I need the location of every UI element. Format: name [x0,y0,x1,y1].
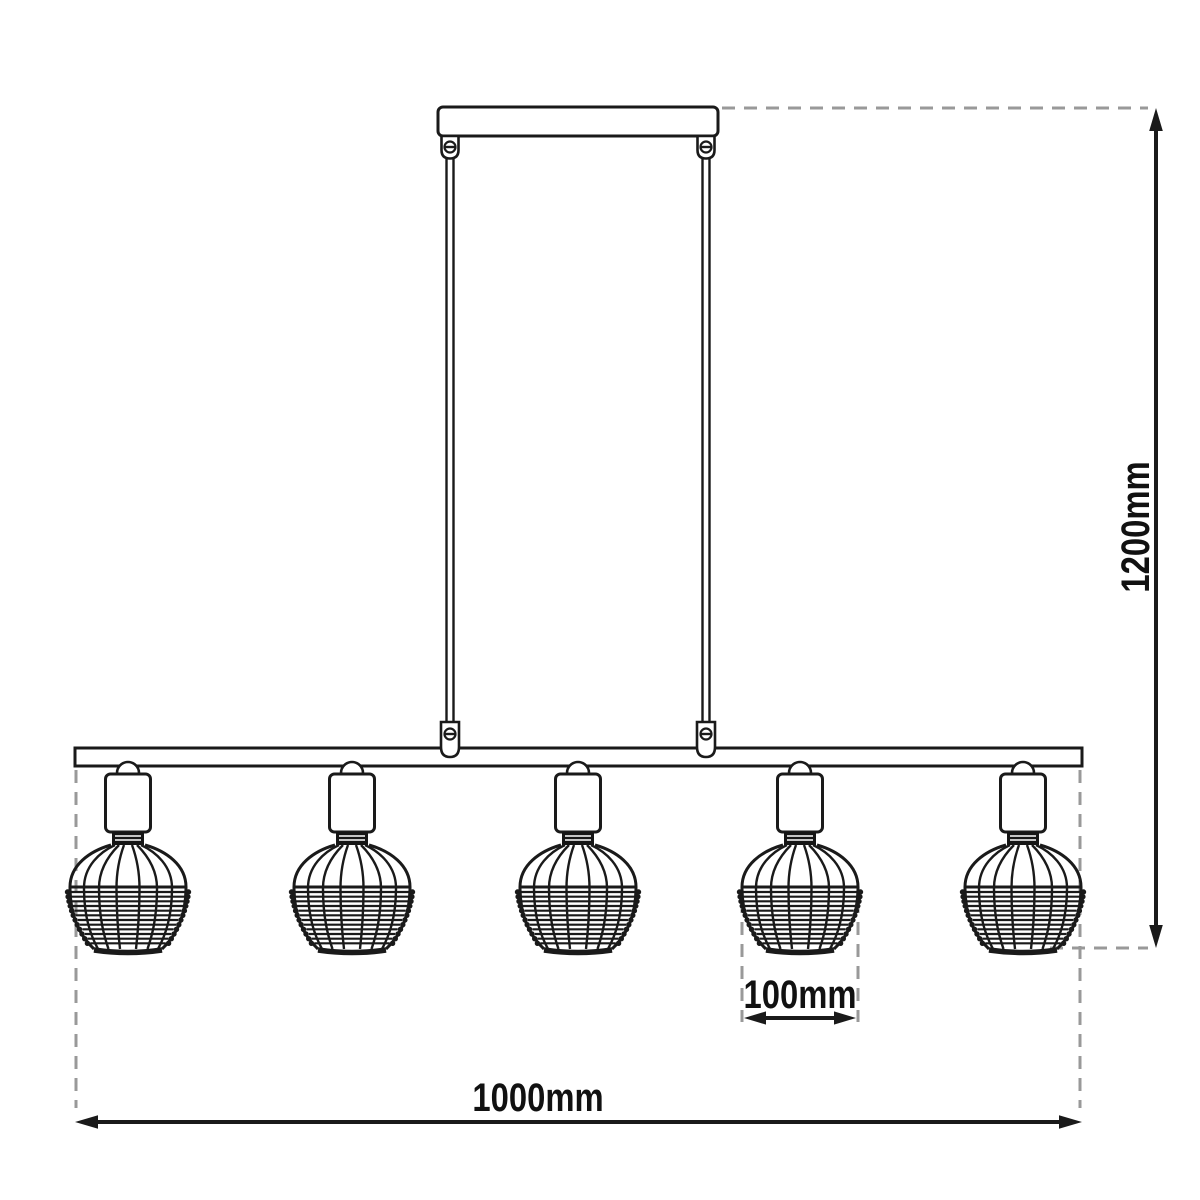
rod-bracket-top-left [442,136,459,159]
arrow-left-icon [75,1115,98,1129]
pendant-lamp-diagram: 1200mm 1000mm 100mm [0,0,1200,1200]
suspension-rod-left [447,156,454,723]
height-dimension-label: 1200mm [1113,461,1158,592]
shade-width-dimension-label: 100mm [743,972,856,1017]
pendant-shade-1 [68,762,189,953]
dimension-height: 1200mm [1113,108,1163,948]
rod-bracket-bottom-left [441,722,459,757]
dimension-guides [76,108,1148,1108]
dimension-width: 1000mm [75,1075,1082,1129]
width-dimension-label: 1000mm [472,1075,603,1120]
shade-layer [68,762,1084,953]
rod-bracket-bottom-right [697,722,715,757]
rod-bracket-top-right [698,136,715,159]
arrow-down-icon [1149,925,1163,948]
pendant-shade-2 [292,762,413,953]
pendant-shade-4 [740,762,861,953]
arrow-up-icon [1149,108,1163,131]
pendant-shade-3 [518,762,639,953]
pendant-shade-5 [963,762,1084,953]
dimension-shade-width: 100mm [743,972,856,1025]
suspension-rod-right [703,156,710,723]
arrow-right-icon [1059,1115,1082,1129]
technical-drawing-page: 1200mm 1000mm 100mm [0,0,1200,1200]
ceiling-canopy-plate [438,107,718,136]
